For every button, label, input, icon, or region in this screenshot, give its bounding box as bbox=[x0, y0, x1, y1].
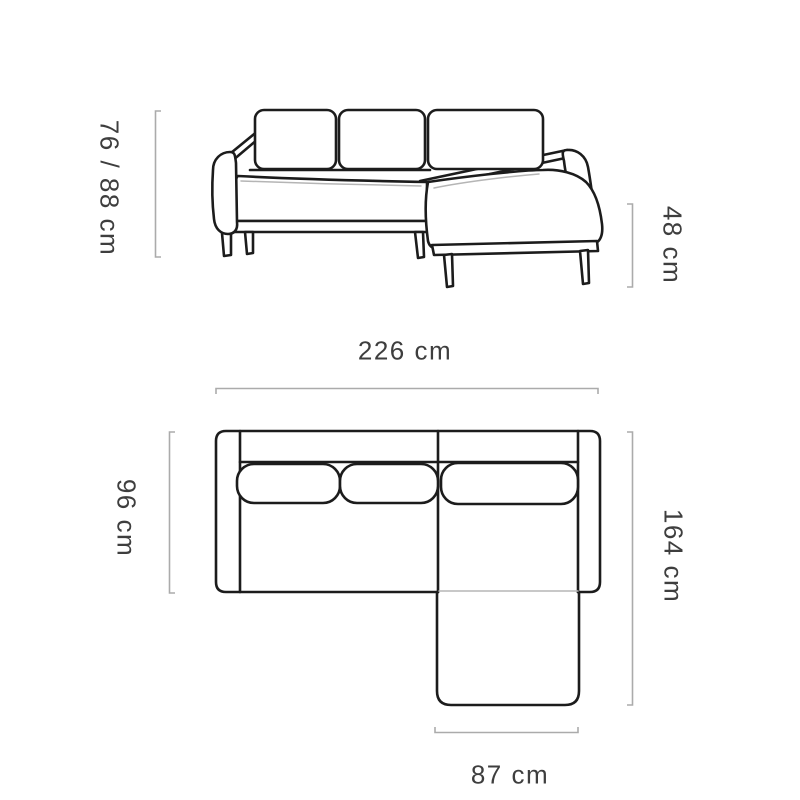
front-chaise-leg-1 bbox=[444, 254, 453, 287]
top-view-drawing bbox=[216, 431, 600, 705]
plan-cushion-1 bbox=[237, 464, 340, 503]
dim-front-height-bracket bbox=[156, 111, 162, 257]
plan-length-label: 164 cm bbox=[658, 509, 689, 603]
front-back-cushion-3 bbox=[428, 110, 543, 169]
sofa-dimension-diagram: 76 / 88 cm 48 cm 226 cm 96 cm 164 cm 87 … bbox=[0, 0, 800, 800]
front-left-armrest bbox=[212, 152, 237, 234]
front-leg-1 bbox=[222, 233, 231, 256]
dim-plan-depth-bracket bbox=[170, 432, 176, 593]
front-chaise bbox=[426, 170, 603, 248]
front-chaise-leg-2 bbox=[580, 250, 589, 284]
front-seat bbox=[236, 176, 427, 221]
front-leg-2 bbox=[245, 232, 253, 254]
dim-plan-chaise-width-bracket bbox=[435, 727, 578, 733]
front-chaise-rail bbox=[432, 241, 598, 255]
plan-chaise-outline bbox=[437, 592, 579, 705]
front-height-label: 76 / 88 cm bbox=[94, 120, 125, 256]
front-back-cushion-2 bbox=[339, 110, 425, 169]
plan-width-label: 226 cm bbox=[358, 336, 452, 367]
front-leg-3 bbox=[415, 232, 424, 258]
front-view-drawing bbox=[212, 110, 602, 287]
dim-plan-width-bracket bbox=[216, 389, 598, 395]
dim-front-seat-height-bracket bbox=[627, 204, 633, 287]
front-back-cushion-1 bbox=[255, 110, 336, 169]
front-seat-height-label: 48 cm bbox=[657, 206, 688, 284]
front-base-rail bbox=[233, 221, 428, 232]
plan-body-outline bbox=[216, 431, 600, 592]
plan-cushion-3 bbox=[441, 463, 578, 504]
plan-cushion-2 bbox=[340, 464, 438, 503]
dim-plan-length-bracket bbox=[627, 432, 633, 705]
plan-depth-label: 96 cm bbox=[111, 479, 142, 557]
plan-chaise-width-label: 87 cm bbox=[471, 760, 549, 791]
